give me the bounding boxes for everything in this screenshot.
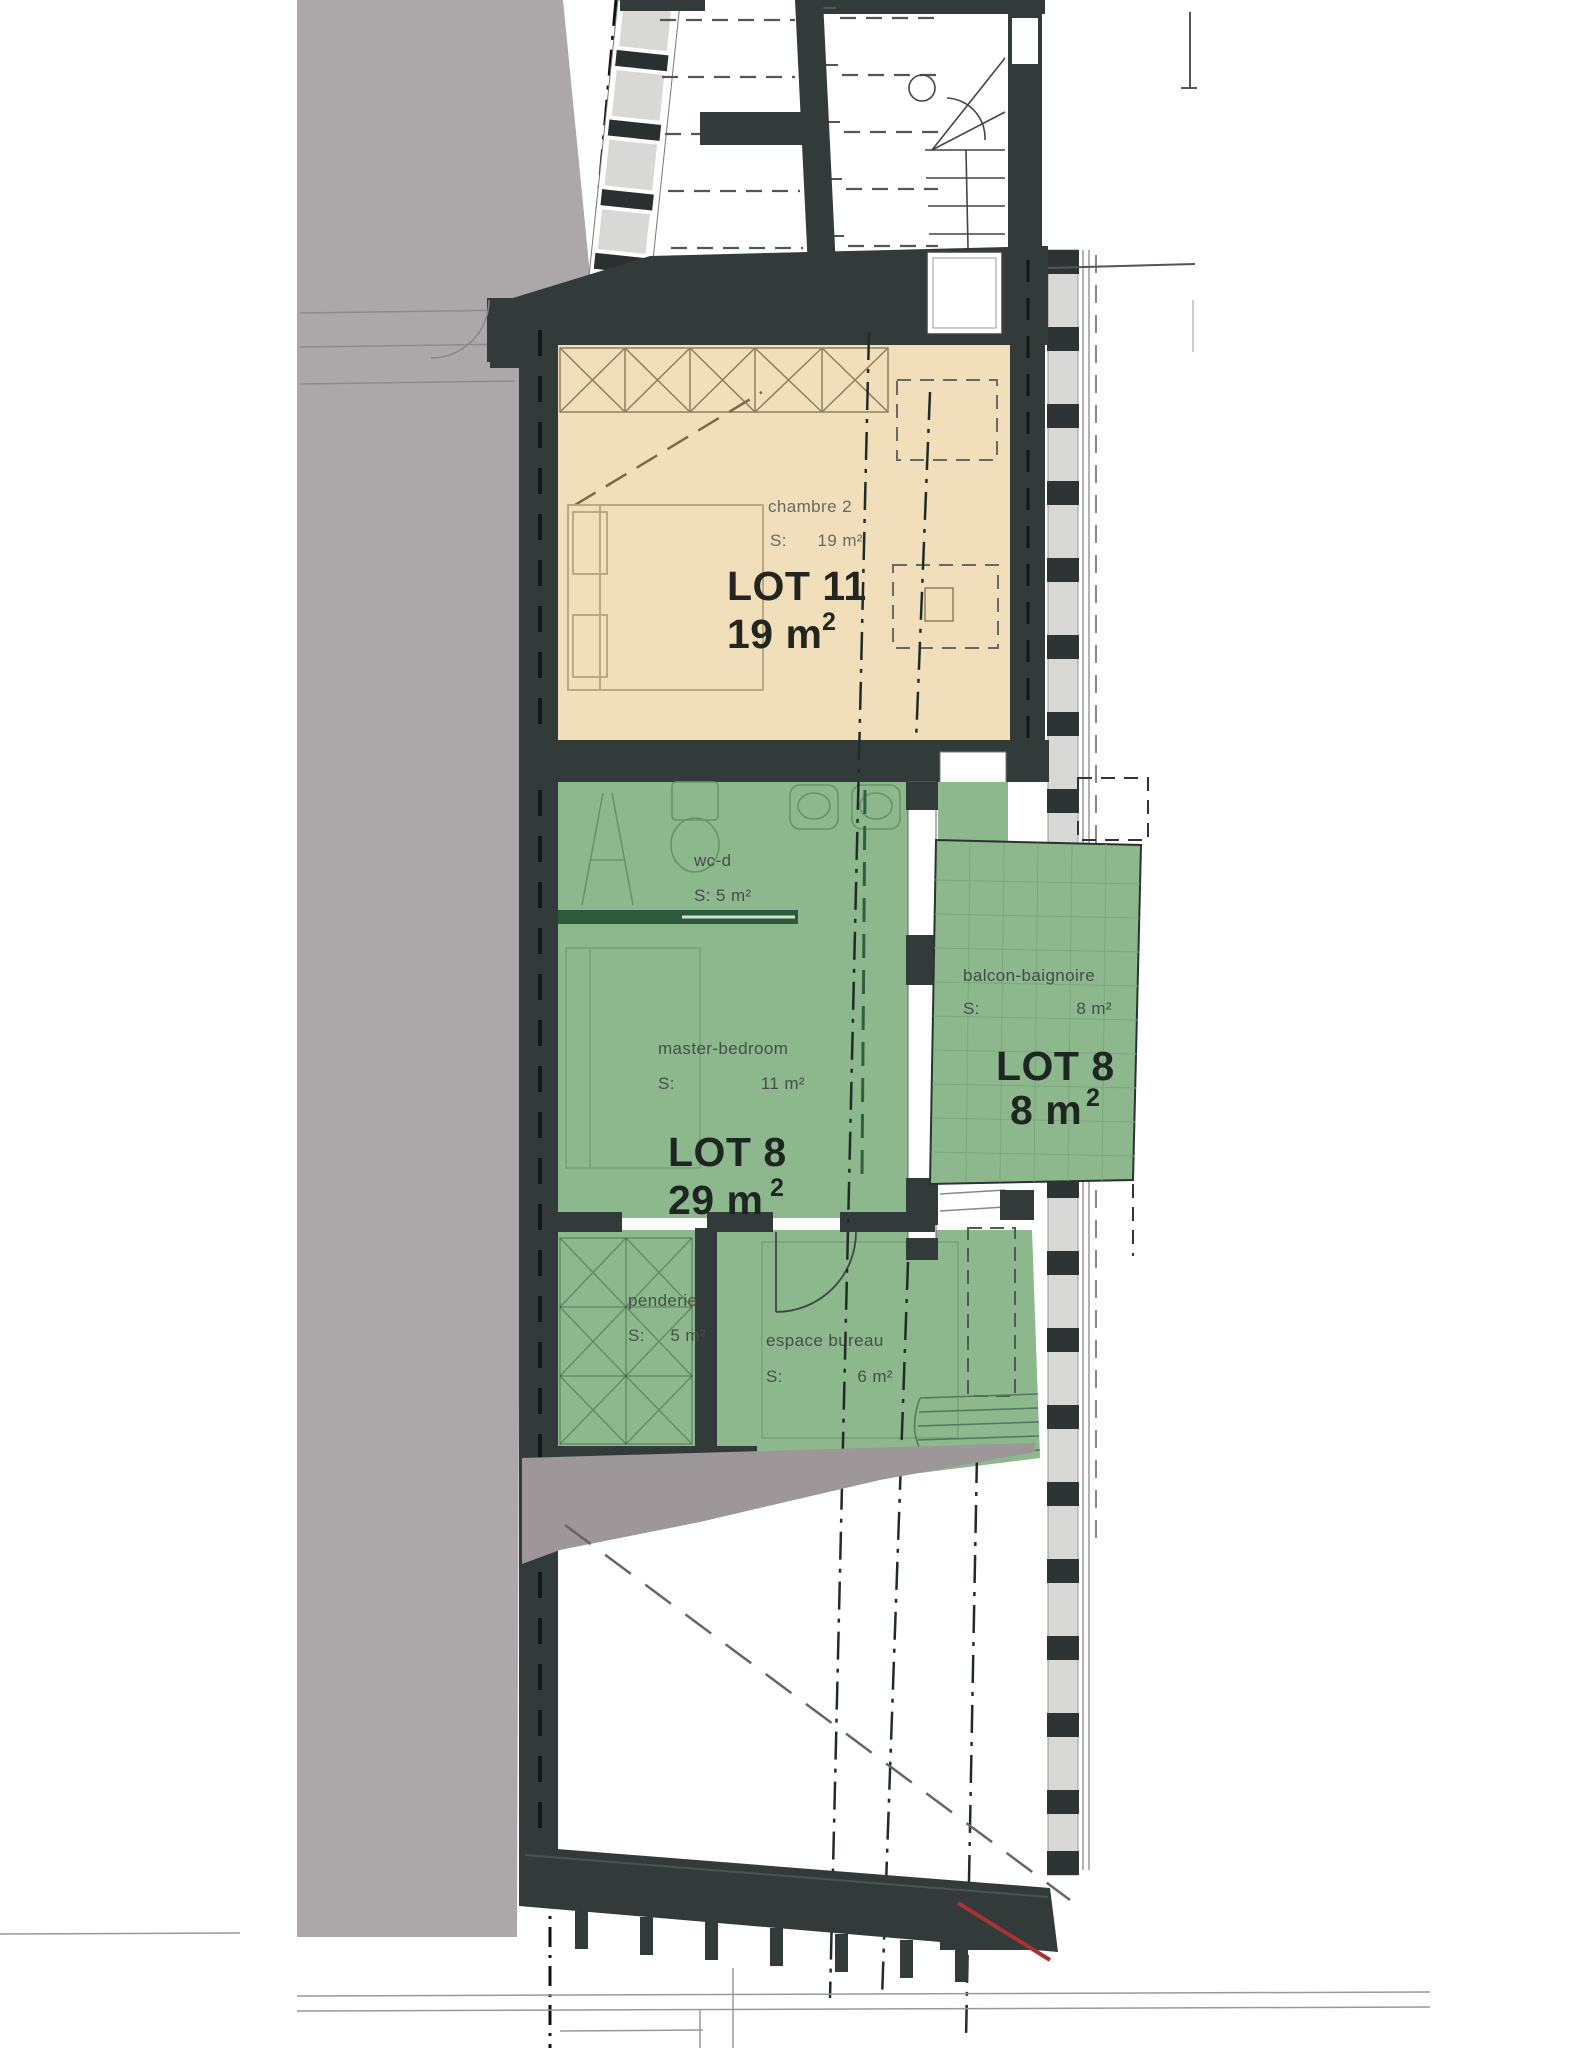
wall-stub [1000,1190,1034,1220]
room-name-lot11: chambre 2 [768,497,852,516]
surface-value-master: 11 m² [761,1074,805,1093]
balcony-access-strip [938,782,1008,842]
surface-label-balcony: S: [963,999,980,1018]
room-name-wc: wc-d [693,851,732,870]
middle-wall-spur [700,112,805,145]
floor-plan-svg: chambre 2 S: 19 m² LOT 11 19 m 2 [0,0,1582,2048]
lot-label-balcony: LOT 8 [996,1043,1115,1089]
room-name-balcony: balcon-baignoire [963,966,1095,985]
surface-value-lot11: 19 m² [818,531,863,550]
window [927,252,1002,334]
surface-wc: S: 5 m² [694,886,752,905]
surface-value-penderie: 5 m² [670,1326,706,1345]
lot-label-lot8: LOT 8 [668,1129,787,1175]
area-lot11: 19 m [727,611,822,657]
area-sup-lot8: 2 [770,1174,784,1202]
area-lot8: 29 m [668,1177,763,1223]
surface-label-lot11: S: [770,531,787,550]
surface-label-master: S: [658,1074,675,1093]
area-sup-lot11: 2 [822,608,836,636]
floor-plan-page: chambre 2 S: 19 m² LOT 11 19 m 2 [0,0,1582,2048]
room-name-bureau: espace bureau [766,1331,884,1350]
room-name-penderie: penderie [628,1291,697,1310]
bureau-floor [715,1230,1040,1478]
surface-value-bureau: 6 m² [857,1367,893,1386]
surface-label-bureau: S: [766,1367,783,1386]
room-name-master: master-bedroom [658,1039,788,1058]
surface-label-penderie: S: [628,1326,645,1345]
surface-value-balcony: 8 m² [1076,999,1112,1018]
area-balcony: 8 m [1010,1087,1082,1133]
lot-label-lot11: LOT 11 [727,563,867,609]
area-sup-balcony: 2 [1086,1084,1100,1112]
